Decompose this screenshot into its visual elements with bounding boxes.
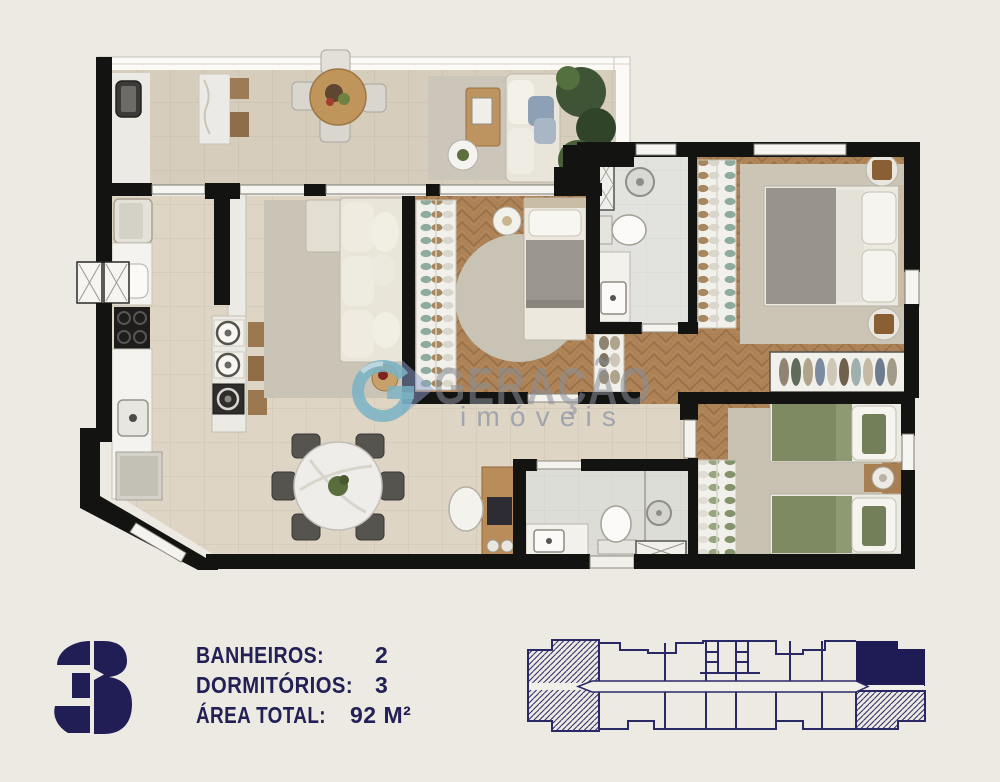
svg-text:DORMITÓRIOS:: DORMITÓRIOS:	[196, 671, 353, 698]
svg-text:2: 2	[375, 642, 388, 668]
svg-text:92 M²: 92 M²	[350, 702, 411, 728]
svg-text:imóveis: imóveis	[460, 401, 626, 432]
svg-text:3: 3	[375, 672, 388, 698]
svg-text:ÁREA TOTAL:: ÁREA TOTAL:	[196, 701, 326, 728]
svg-text:BANHEIROS:: BANHEIROS:	[196, 642, 324, 668]
